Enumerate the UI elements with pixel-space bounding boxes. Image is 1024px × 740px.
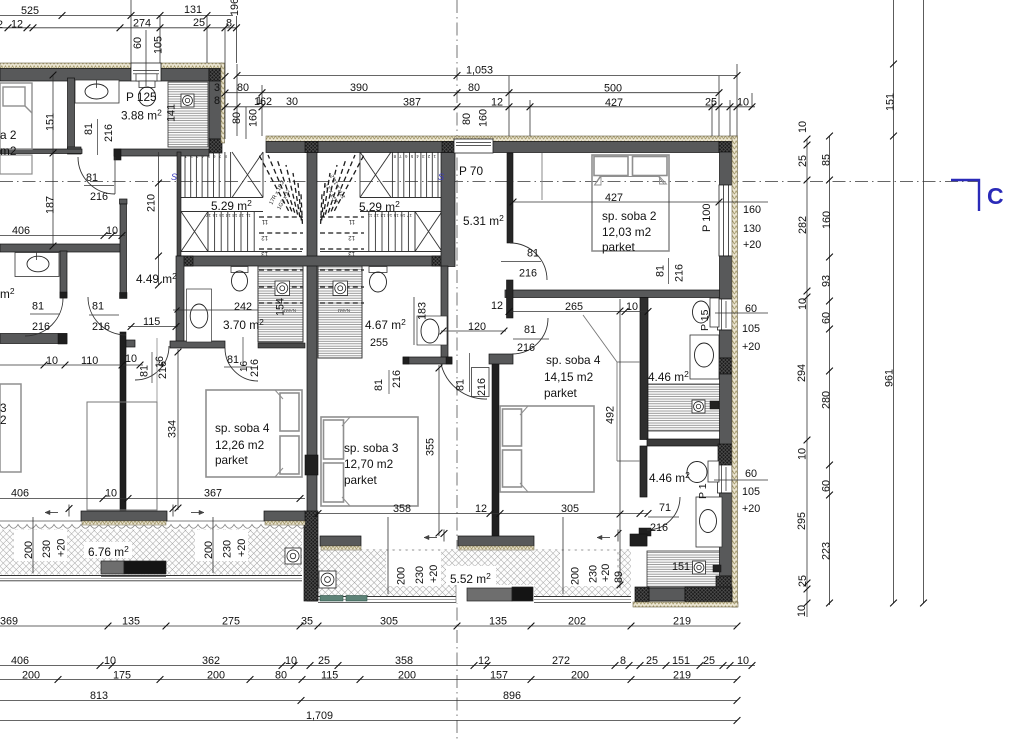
svg-text:294: 294 xyxy=(796,364,808,382)
svg-text:135: 135 xyxy=(122,616,140,628)
svg-text:3.70 m2: 3.70 m2 xyxy=(223,317,264,332)
svg-text:216: 216 xyxy=(90,191,108,203)
svg-text:200: 200 xyxy=(23,541,35,559)
svg-text:+20: +20 xyxy=(742,341,760,353)
svg-text:151: 151 xyxy=(885,93,897,111)
svg-text:P 125: P 125 xyxy=(126,90,157,104)
svg-text:parket: parket xyxy=(602,240,636,254)
svg-text:sp. soba 4: sp. soba 4 xyxy=(215,421,270,435)
svg-text:275: 275 xyxy=(222,616,240,628)
svg-text:93: 93 xyxy=(821,275,833,287)
svg-text:parket: parket xyxy=(344,473,378,487)
svg-text:110: 110 xyxy=(81,355,98,367)
svg-text:1,053: 1,053 xyxy=(466,65,493,77)
svg-text:14,15 m2: 14,15 m2 xyxy=(544,370,593,384)
svg-text:10: 10 xyxy=(737,655,749,667)
svg-text:216: 216 xyxy=(249,359,261,377)
svg-text:6.76 m2: 6.76 m2 xyxy=(88,544,129,559)
svg-text:230: 230 xyxy=(414,566,426,584)
svg-text:12,70 m2: 12,70 m2 xyxy=(344,457,393,471)
svg-text:369: 369 xyxy=(0,616,18,628)
svg-text:80: 80 xyxy=(468,82,480,94)
svg-text:S: S xyxy=(171,172,177,182)
svg-text:16: 16 xyxy=(400,213,406,218)
svg-text:12: 12 xyxy=(261,234,268,240)
svg-text:358: 358 xyxy=(395,655,413,667)
svg-text:5.29 m2: 5.29 m2 xyxy=(211,198,252,213)
svg-text:151: 151 xyxy=(672,561,690,573)
svg-text:10: 10 xyxy=(104,655,116,667)
svg-text:P 70: P 70 xyxy=(459,164,483,178)
svg-text:P 1: P 1 xyxy=(697,483,709,499)
svg-text:16: 16 xyxy=(212,213,218,218)
svg-text:216: 216 xyxy=(103,124,115,142)
svg-text:NAMJ: NAMJ xyxy=(338,308,350,313)
svg-text:+20: +20 xyxy=(236,539,248,557)
svg-text:200: 200 xyxy=(398,670,416,682)
svg-text:4.49 m2: 4.49 m2 xyxy=(136,271,177,286)
svg-text:81: 81 xyxy=(524,324,536,336)
svg-text:358: 358 xyxy=(393,503,411,515)
svg-text:S: S xyxy=(438,172,444,182)
svg-text:81: 81 xyxy=(227,354,239,366)
svg-text:216: 216 xyxy=(157,361,169,379)
svg-text:10: 10 xyxy=(797,121,809,133)
svg-text:216: 216 xyxy=(476,378,488,396)
svg-text:105: 105 xyxy=(153,36,165,54)
svg-text:81: 81 xyxy=(86,172,98,184)
svg-text:305: 305 xyxy=(561,503,579,515)
svg-text:80: 80 xyxy=(237,82,249,94)
svg-text:25: 25 xyxy=(703,655,715,667)
svg-text:81: 81 xyxy=(92,301,104,313)
svg-text:+20: +20 xyxy=(743,239,761,251)
svg-text:427: 427 xyxy=(605,97,623,109)
svg-text:105: 105 xyxy=(742,486,760,498)
svg-text:183: 183 xyxy=(417,302,429,320)
svg-text:25: 25 xyxy=(193,17,205,29)
svg-text:1,709: 1,709 xyxy=(306,710,333,722)
svg-text:216: 216 xyxy=(517,342,535,354)
svg-text:sp. soba 3: sp. soba 3 xyxy=(344,441,399,455)
svg-text:5.31 m2: 5.31 m2 xyxy=(463,213,504,228)
svg-text:80: 80 xyxy=(275,670,287,682)
svg-text:2: 2 xyxy=(0,19,3,31)
svg-text:30: 30 xyxy=(286,96,298,108)
svg-text:13: 13 xyxy=(348,250,355,256)
svg-text:81: 81 xyxy=(373,379,385,391)
svg-text:5.29 m2: 5.29 m2 xyxy=(359,199,400,214)
svg-text:274: 274 xyxy=(133,18,151,30)
svg-text:60: 60 xyxy=(132,37,144,49)
svg-text:141: 141 xyxy=(166,104,178,122)
svg-text:151: 151 xyxy=(672,655,690,667)
svg-text:parket: parket xyxy=(215,453,249,467)
svg-text:200: 200 xyxy=(203,541,215,559)
svg-text:427: 427 xyxy=(605,192,623,204)
svg-text:10: 10 xyxy=(737,97,749,109)
svg-text:17: 17 xyxy=(205,213,211,218)
svg-text:210: 210 xyxy=(146,194,158,212)
svg-text:151: 151 xyxy=(45,113,57,131)
svg-text:35: 35 xyxy=(301,616,313,628)
svg-text:525: 525 xyxy=(21,5,39,17)
svg-text:216: 216 xyxy=(391,370,403,388)
svg-text:81: 81 xyxy=(32,301,44,313)
svg-text:8: 8 xyxy=(226,18,232,30)
svg-text:390: 390 xyxy=(350,82,368,94)
svg-text:216: 216 xyxy=(92,321,110,333)
svg-text:160: 160 xyxy=(478,109,490,127)
svg-text:12: 12 xyxy=(238,213,244,218)
svg-text:216: 216 xyxy=(674,264,686,282)
svg-text:216: 216 xyxy=(650,522,668,534)
svg-text:500: 500 xyxy=(604,83,622,95)
svg-text:334: 334 xyxy=(167,420,179,438)
svg-text:sp. soba 4: sp. soba 4 xyxy=(546,353,601,367)
svg-text:230: 230 xyxy=(588,565,600,583)
svg-text:81: 81 xyxy=(83,123,95,135)
svg-text:P 15: P 15 xyxy=(699,309,711,331)
svg-text:367: 367 xyxy=(204,488,222,500)
svg-text:12: 12 xyxy=(478,655,490,667)
svg-text:961: 961 xyxy=(884,369,896,387)
svg-text:10: 10 xyxy=(797,448,809,460)
svg-text:81: 81 xyxy=(139,365,151,377)
svg-text:406: 406 xyxy=(12,225,30,237)
svg-text:P 100: P 100 xyxy=(701,203,713,232)
svg-text:387: 387 xyxy=(403,97,421,109)
svg-text:10: 10 xyxy=(796,605,808,617)
svg-text:12,26 m2: 12,26 m2 xyxy=(215,438,264,452)
svg-text:60: 60 xyxy=(745,303,757,315)
svg-text:160: 160 xyxy=(743,204,761,216)
svg-text:131: 131 xyxy=(184,4,202,16)
svg-text:12: 12 xyxy=(475,503,487,515)
svg-text:200: 200 xyxy=(396,567,408,585)
svg-text:71: 71 xyxy=(659,502,671,514)
svg-text:8: 8 xyxy=(214,95,220,107)
svg-text:3: 3 xyxy=(214,82,220,94)
svg-text:60: 60 xyxy=(821,480,833,492)
svg-text:187: 187 xyxy=(45,196,57,214)
svg-text:8: 8 xyxy=(620,655,626,667)
svg-text:200: 200 xyxy=(570,567,582,585)
svg-text:12,03 m2: 12,03 m2 xyxy=(602,225,651,239)
svg-text:60: 60 xyxy=(821,312,833,324)
svg-text:135: 135 xyxy=(489,616,507,628)
svg-text:492: 492 xyxy=(605,406,617,424)
svg-text:216: 216 xyxy=(519,268,537,280)
svg-text:5.52 m2: 5.52 m2 xyxy=(450,571,491,586)
svg-text:230: 230 xyxy=(222,540,234,558)
svg-text:10: 10 xyxy=(106,225,118,237)
svg-text:60: 60 xyxy=(745,468,757,480)
svg-text:11: 11 xyxy=(245,213,250,218)
svg-text:+20: +20 xyxy=(428,565,440,583)
svg-text:219: 219 xyxy=(673,616,691,628)
svg-text:+20: +20 xyxy=(742,503,760,515)
svg-text:200: 200 xyxy=(207,670,225,682)
svg-text:175: 175 xyxy=(113,670,131,682)
svg-text:17: 17 xyxy=(406,213,412,218)
svg-text:295: 295 xyxy=(796,512,808,530)
svg-text:81: 81 xyxy=(455,379,467,391)
svg-text:10: 10 xyxy=(125,353,137,365)
svg-text:4.67 m2: 4.67 m2 xyxy=(365,317,406,332)
svg-text:11: 11 xyxy=(348,218,355,224)
svg-text:196: 196 xyxy=(229,0,241,16)
svg-text:255: 255 xyxy=(370,337,388,349)
svg-text:105: 105 xyxy=(742,323,760,335)
svg-text:154: 154 xyxy=(275,298,287,316)
svg-text:sp. soba 2: sp. soba 2 xyxy=(602,209,656,223)
svg-text:3.88 m2: 3.88 m2 xyxy=(121,108,162,123)
svg-text:115: 115 xyxy=(321,670,338,682)
svg-text:10: 10 xyxy=(46,355,58,367)
svg-text:305: 305 xyxy=(380,616,398,628)
svg-text:272: 272 xyxy=(552,655,570,667)
svg-text:12: 12 xyxy=(348,234,355,240)
svg-text:355: 355 xyxy=(425,438,437,456)
svg-text:4.46 m2: 4.46 m2 xyxy=(649,470,690,485)
svg-text:89: 89 xyxy=(613,571,625,583)
svg-text:85: 85 xyxy=(821,154,833,166)
svg-text:parket: parket xyxy=(544,386,578,400)
svg-text:11: 11 xyxy=(261,218,268,224)
svg-text:265: 265 xyxy=(565,301,583,313)
svg-text:25: 25 xyxy=(705,97,717,109)
svg-text:81: 81 xyxy=(527,248,539,260)
svg-text:15: 15 xyxy=(219,213,225,218)
svg-text:202: 202 xyxy=(568,616,586,628)
svg-text:13: 13 xyxy=(261,250,268,256)
svg-text:12: 12 xyxy=(11,19,23,31)
svg-text:10: 10 xyxy=(105,488,117,500)
svg-text:130: 130 xyxy=(743,223,761,235)
svg-text:25: 25 xyxy=(646,655,658,667)
svg-text:12: 12 xyxy=(491,300,503,312)
svg-text:242: 242 xyxy=(234,301,252,313)
svg-text:200: 200 xyxy=(571,670,589,682)
svg-text:10: 10 xyxy=(285,655,297,667)
svg-text:+20: +20 xyxy=(600,564,612,582)
svg-text:25: 25 xyxy=(318,655,330,667)
svg-text:+20: +20 xyxy=(56,539,68,557)
svg-text:160: 160 xyxy=(821,211,833,229)
svg-text:280: 280 xyxy=(821,391,833,409)
svg-text:25: 25 xyxy=(797,575,809,587)
svg-text:406: 406 xyxy=(11,655,29,667)
svg-text:4.46 m2: 4.46 m2 xyxy=(648,369,689,384)
svg-text:157: 157 xyxy=(490,670,508,682)
svg-text:230: 230 xyxy=(41,540,53,558)
svg-text:813: 813 xyxy=(90,690,108,702)
svg-text:160: 160 xyxy=(248,109,260,127)
svg-text:80: 80 xyxy=(461,113,473,125)
svg-text:1: 1 xyxy=(256,95,262,107)
svg-text:m2: m2 xyxy=(0,144,16,158)
svg-text:80: 80 xyxy=(231,112,243,124)
svg-text:223: 223 xyxy=(821,542,833,560)
svg-text:14: 14 xyxy=(225,213,231,218)
svg-text:10: 10 xyxy=(626,301,638,313)
svg-text:200: 200 xyxy=(22,670,40,682)
svg-text:13: 13 xyxy=(232,213,238,218)
svg-text:406: 406 xyxy=(11,488,29,500)
svg-text:219: 219 xyxy=(673,670,691,682)
svg-text:362: 362 xyxy=(202,655,220,667)
svg-text:C: C xyxy=(987,183,1004,209)
svg-text:282: 282 xyxy=(797,216,809,234)
svg-text:896: 896 xyxy=(503,690,521,702)
svg-text:216: 216 xyxy=(32,321,50,333)
svg-text:10: 10 xyxy=(797,298,809,310)
svg-text:a 2: a 2 xyxy=(0,128,16,142)
svg-text:115: 115 xyxy=(143,316,160,328)
svg-text:25: 25 xyxy=(797,155,809,167)
svg-text:2: 2 xyxy=(0,413,7,427)
svg-text:120: 120 xyxy=(468,321,486,333)
svg-text:81: 81 xyxy=(655,265,667,277)
svg-text:12: 12 xyxy=(491,97,503,109)
